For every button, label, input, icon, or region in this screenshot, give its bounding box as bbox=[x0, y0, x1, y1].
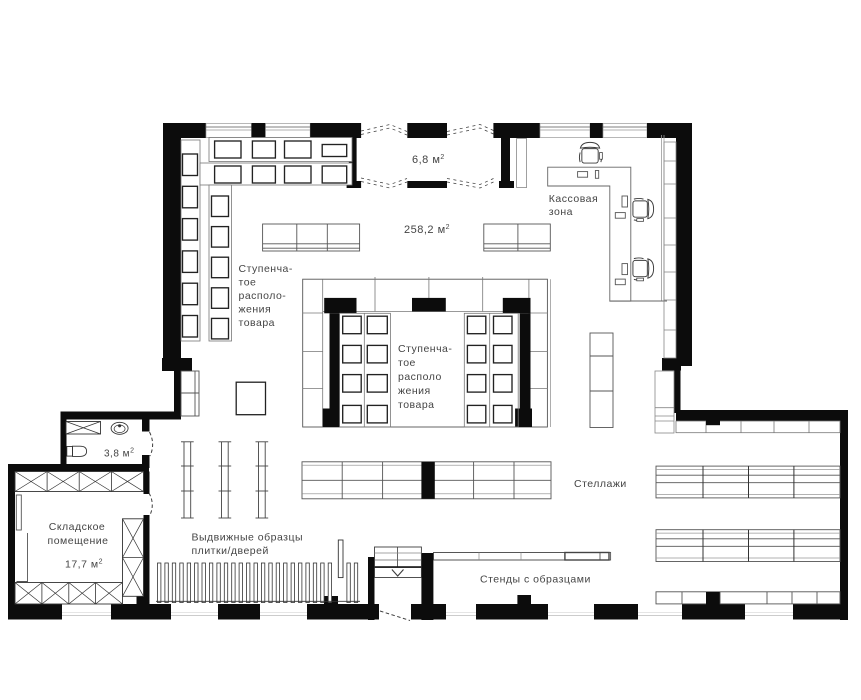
svg-text:Выдвижные образцы: Выдвижные образцы bbox=[192, 532, 304, 544]
svg-text:помещение: помещение bbox=[48, 535, 109, 547]
svg-text:жения: жения bbox=[239, 304, 272, 316]
svg-text:тое: тое bbox=[398, 357, 416, 369]
svg-text:располо: располо bbox=[398, 371, 442, 383]
svg-text:Стеллажи: Стеллажи bbox=[574, 478, 627, 490]
svg-text:17,7 м2: 17,7 м2 bbox=[65, 559, 103, 571]
svg-text:тое: тое bbox=[239, 277, 257, 289]
svg-text:Ступенча-: Ступенча- bbox=[398, 343, 452, 355]
svg-text:Стенды с образцами: Стенды с образцами bbox=[480, 574, 591, 586]
svg-text:258,2 м2: 258,2 м2 bbox=[404, 224, 450, 236]
svg-text:Складское: Складское bbox=[49, 521, 106, 533]
svg-text:располо-: располо- bbox=[239, 290, 287, 302]
svg-text:Кассовая: Кассовая bbox=[549, 193, 598, 205]
svg-text:зона: зона bbox=[549, 206, 573, 218]
svg-text:товара: товара bbox=[398, 399, 435, 411]
svg-text:товара: товара bbox=[239, 317, 276, 329]
svg-text:6,8 м2: 6,8 м2 bbox=[412, 154, 445, 166]
svg-text:плитки/дверей: плитки/дверей bbox=[192, 545, 269, 557]
svg-text:Ступенча-: Ступенча- bbox=[239, 263, 293, 275]
svg-text:жения: жения bbox=[398, 385, 431, 397]
svg-text:3,8 м2: 3,8 м2 bbox=[104, 448, 134, 460]
